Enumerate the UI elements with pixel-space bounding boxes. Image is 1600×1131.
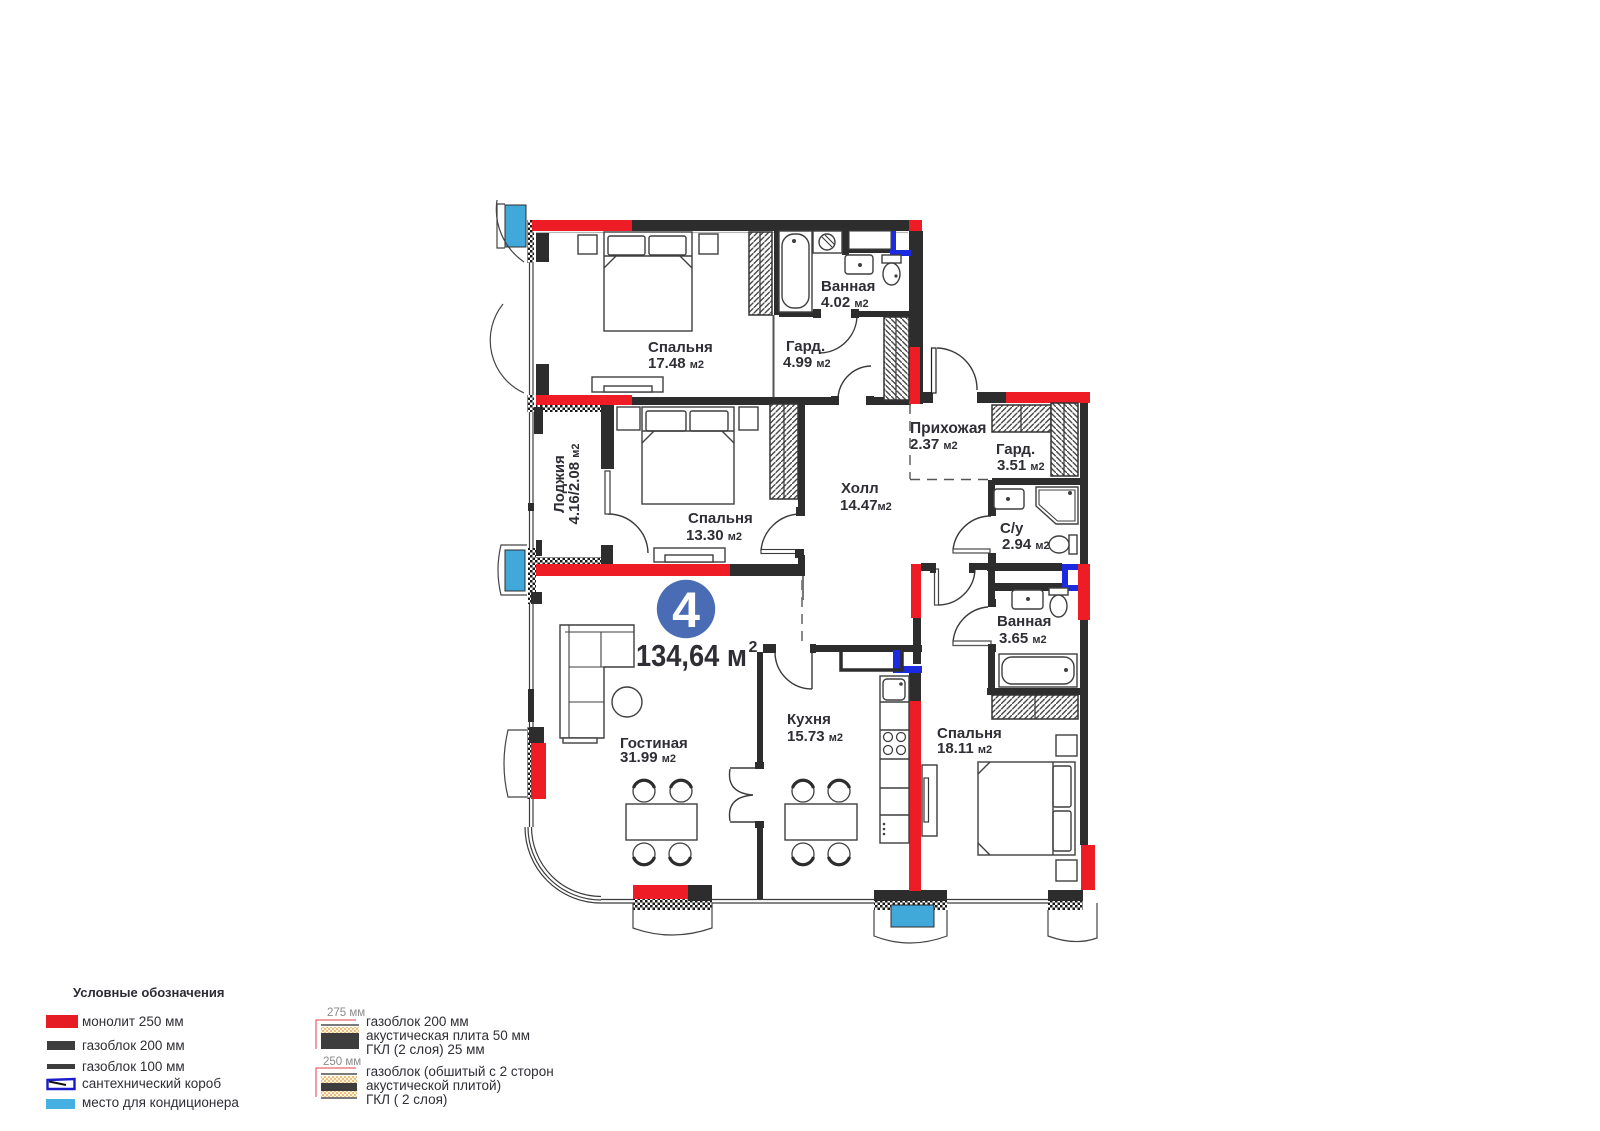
- svg-text:место для кондиционера: место для кондиционера: [82, 1095, 239, 1110]
- svg-text:Спальня: Спальня: [648, 339, 713, 356]
- svg-text:газоблок 200 мм: газоблок 200 мм: [82, 1038, 185, 1053]
- svg-text:газоблок (обшитый с 2 сторон: газоблок (обшитый с 2 сторон: [366, 1064, 554, 1079]
- svg-text:Спальня: Спальня: [688, 510, 753, 527]
- svg-text:Ванная: Ванная: [821, 278, 875, 295]
- svg-text:2: 2: [749, 639, 758, 656]
- svg-text:Холл: Холл: [841, 480, 879, 497]
- svg-text:акустическая плита 50 мм: акустическая плита 50 мм: [366, 1028, 530, 1043]
- svg-text:газоблок 200 мм: газоблок 200 мм: [366, 1014, 469, 1029]
- svg-text:ГКЛ (2 слоя) 25 мм: ГКЛ (2 слоя) 25 мм: [366, 1042, 485, 1057]
- svg-text:Кухня: Кухня: [787, 711, 831, 728]
- svg-text:134,64 м: 134,64 м: [636, 638, 747, 673]
- svg-text:250 мм: 250 мм: [323, 1056, 361, 1068]
- svg-text:газоблок 100 мм: газоблок 100 мм: [82, 1059, 185, 1074]
- svg-text:Ванная: Ванная: [997, 613, 1051, 630]
- svg-text:Гард.: Гард.: [996, 441, 1035, 458]
- svg-text:Условные обозначения: Условные обозначения: [73, 985, 224, 1000]
- svg-text:Гард.: Гард.: [786, 338, 825, 355]
- svg-text:Прихожая: Прихожая: [910, 420, 986, 437]
- svg-text:монолит 250 мм: монолит 250 мм: [82, 1014, 184, 1029]
- svg-text:акустической плитой): акустической плитой): [366, 1078, 501, 1093]
- svg-text:ГКЛ ( 2 слоя): ГКЛ ( 2 слоя): [366, 1092, 447, 1107]
- svg-text:4: 4: [672, 582, 700, 638]
- svg-text:275 мм: 275 мм: [327, 1007, 365, 1019]
- svg-text:сантехнический короб: сантехнический короб: [82, 1076, 221, 1091]
- svg-text:С/у: С/у: [1000, 520, 1024, 537]
